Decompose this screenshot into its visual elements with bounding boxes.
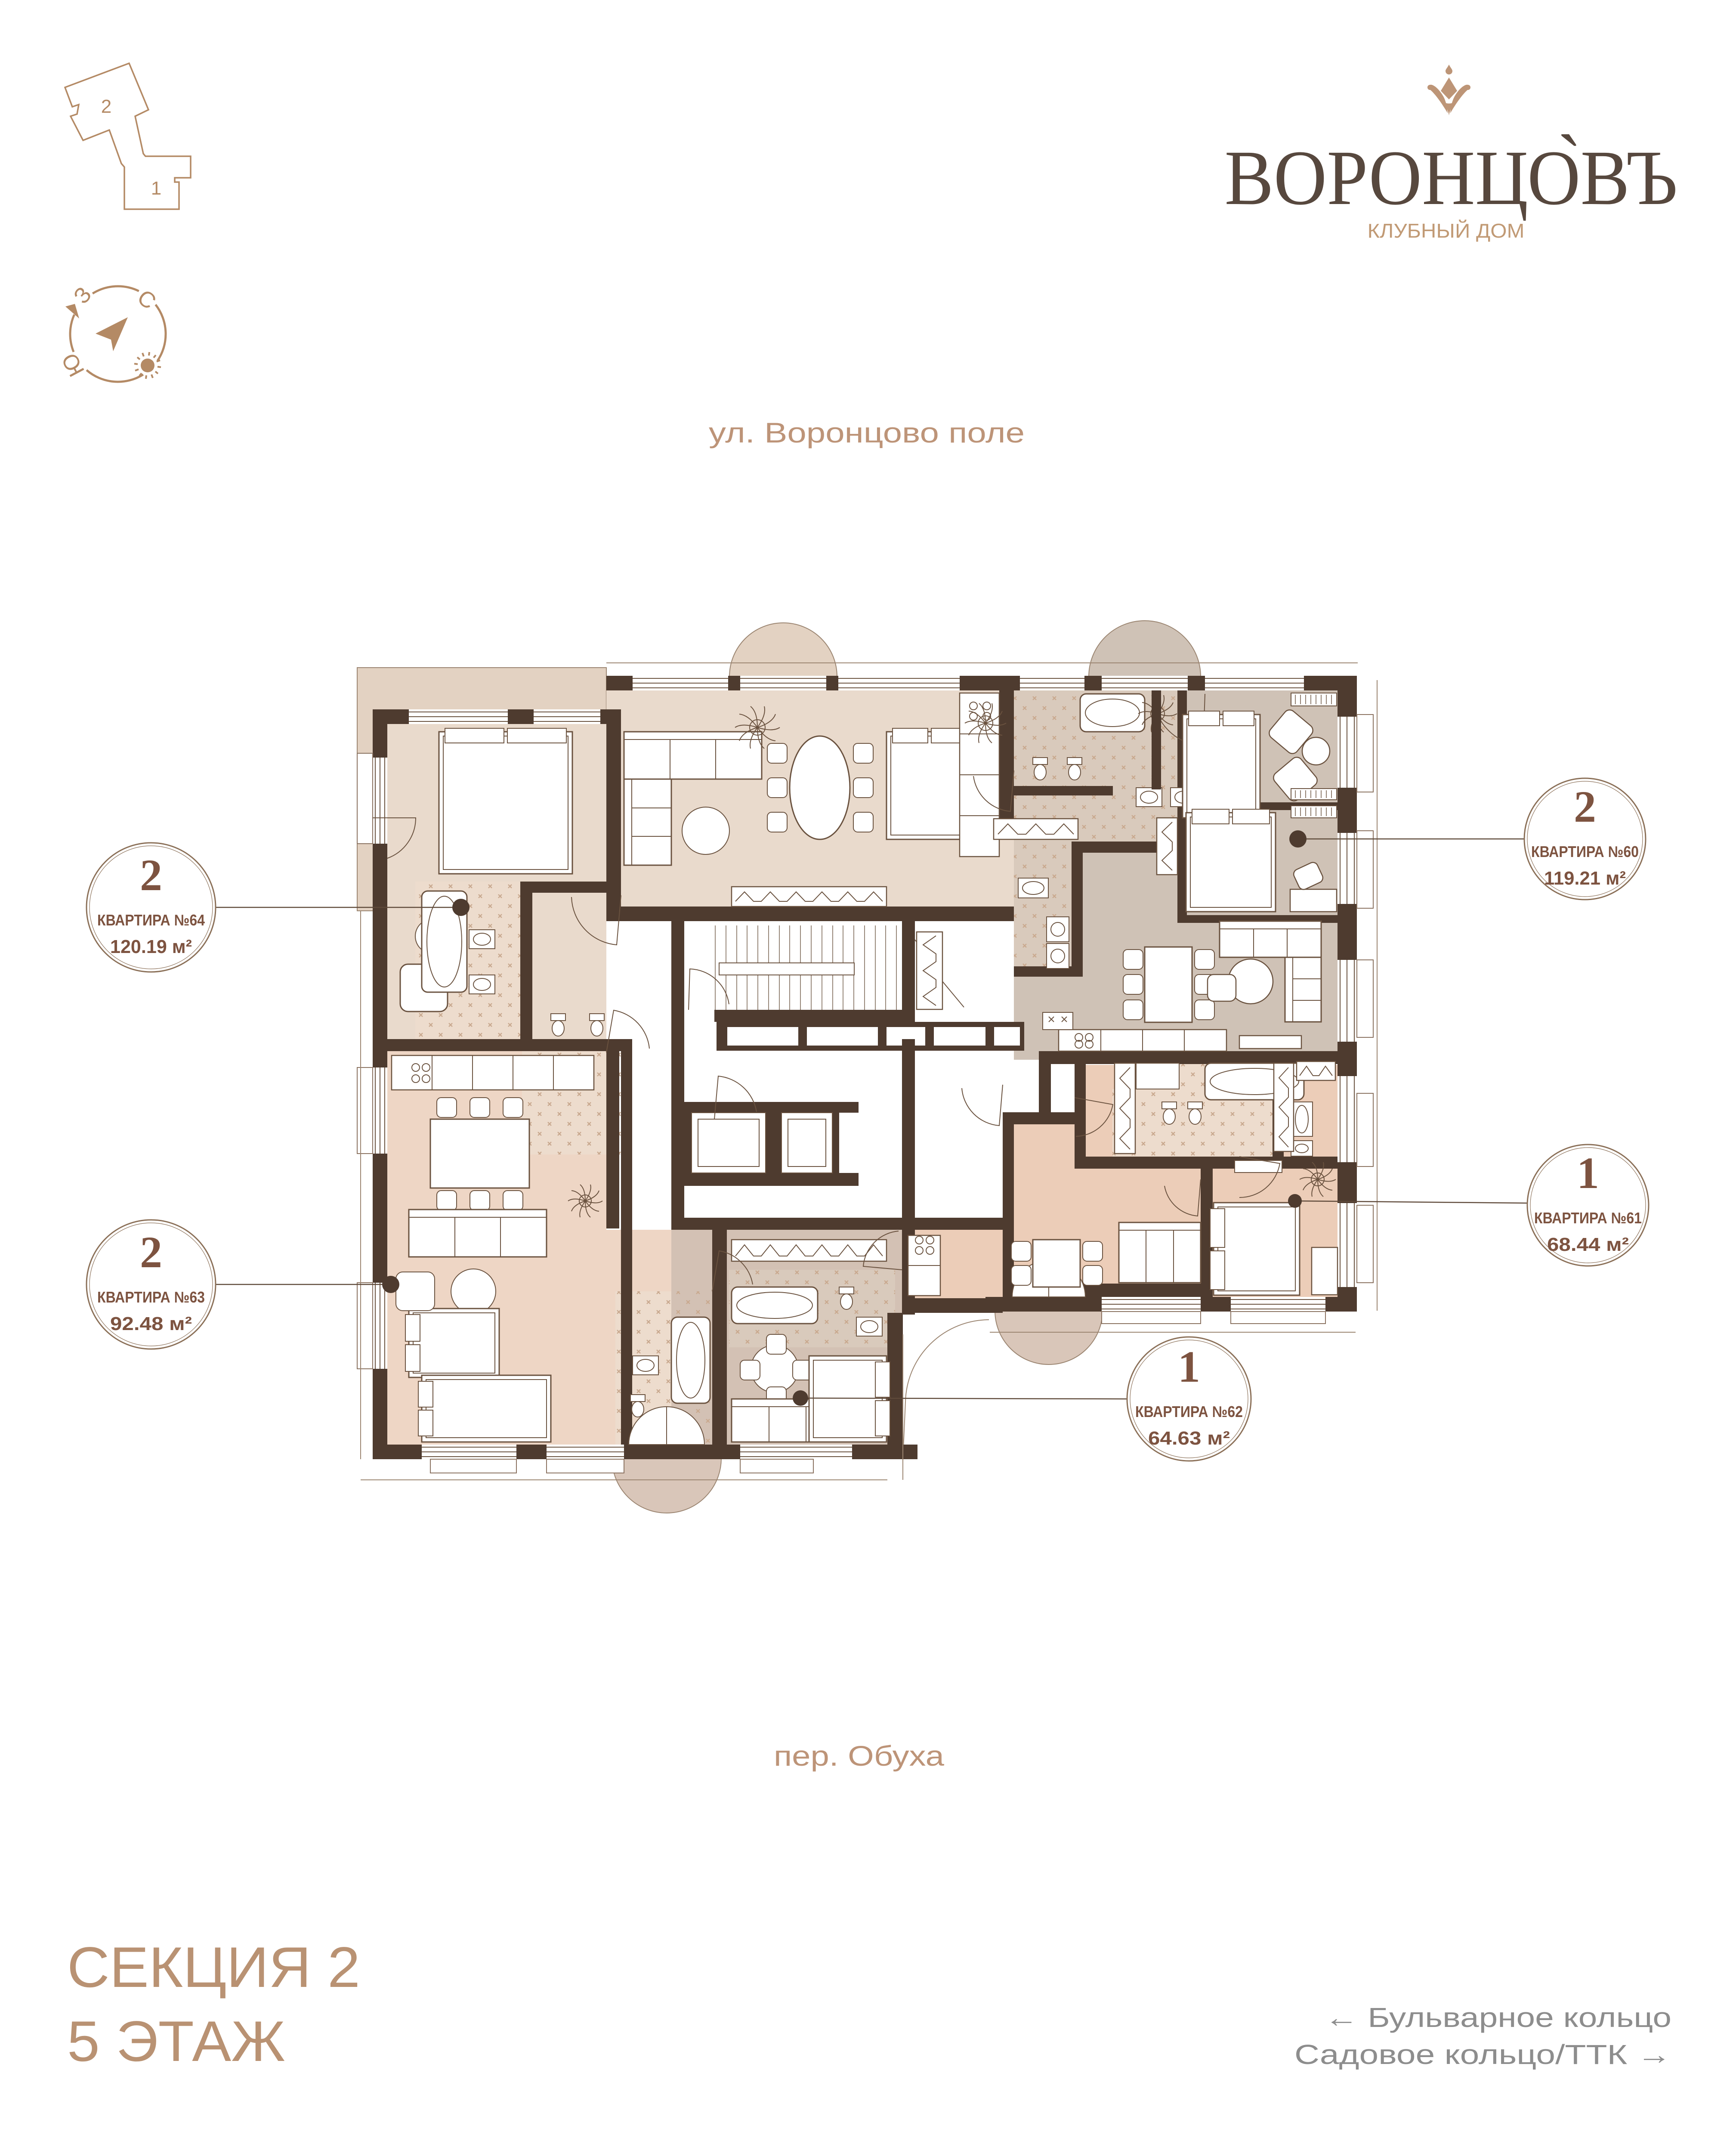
svg-text:КВАРТИРА №62: КВАРТИРА №62 — [1135, 1403, 1243, 1420]
svg-text:2: 2 — [140, 1228, 162, 1277]
svg-text:68.44 м²: 68.44 м² — [1547, 1234, 1629, 1255]
svg-text:1: 1 — [1178, 1342, 1200, 1392]
svg-text:5 ЭТАЖ: 5 ЭТАЖ — [67, 2010, 285, 2073]
svg-text:2: 2 — [140, 851, 162, 900]
svg-text:1: 1 — [1577, 1148, 1599, 1198]
svg-text:← Бульварное кольцо: ← Бульварное кольцо — [1325, 2002, 1671, 2033]
svg-text:Садовое кольцо/ТТК →: Садовое кольцо/ТТК → — [1294, 2039, 1671, 2070]
svg-text:64.63 м²: 64.63 м² — [1148, 1428, 1230, 1449]
svg-text:КЛУБНЫЙ ДОМ: КЛУБНЫЙ ДОМ — [1368, 220, 1525, 242]
svg-text:92.48 м²: 92.48 м² — [110, 1313, 192, 1334]
svg-text:ВОРОНЦО̀ВЪ: ВОРОНЦО̀ВЪ — [1225, 134, 1678, 221]
svg-text:КВАРТИРА №61: КВАРТИРА №61 — [1534, 1209, 1642, 1227]
svg-text:120.19 м²: 120.19 м² — [110, 936, 192, 957]
svg-text:КВАРТИРА №60: КВАРТИРА №60 — [1531, 843, 1639, 860]
svg-text:119.21 м²: 119.21 м² — [1544, 868, 1626, 889]
svg-text:КВАРТИРА №64: КВАРТИРА №64 — [97, 911, 205, 929]
svg-text:КВАРТИРА №63: КВАРТИРА №63 — [97, 1288, 205, 1306]
svg-text:1: 1 — [151, 178, 161, 199]
svg-text:2: 2 — [101, 96, 111, 117]
svg-text:СЕКЦИЯ 2: СЕКЦИЯ 2 — [67, 1936, 360, 1999]
svg-text:пер. Обуха: пер. Обуха — [774, 1740, 944, 1772]
svg-text:ул. Воронцово поле: ул. Воронцово поле — [709, 417, 1025, 449]
svg-text:2: 2 — [1574, 782, 1596, 832]
